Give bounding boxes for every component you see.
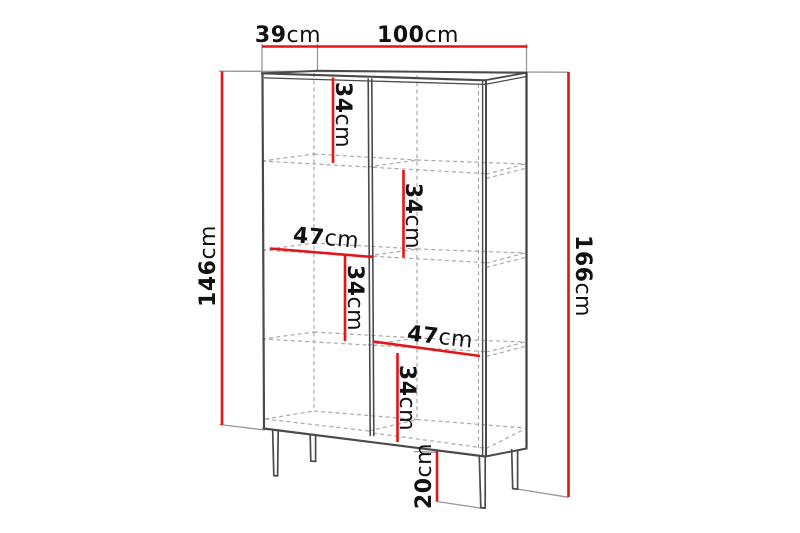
- dimension-value: 34: [394, 365, 419, 397]
- dimension-value: 20: [412, 477, 437, 509]
- dimension-unit: cm: [330, 114, 355, 149]
- dimension-depth-label: 39cm: [255, 25, 321, 47]
- dimension-width-label: 100cm: [377, 25, 459, 47]
- extension-lines: [219, 44, 569, 509]
- dimension-unit: cm: [400, 215, 425, 250]
- dimension-unit: cm: [196, 225, 221, 260]
- dimension-value: 34: [342, 265, 367, 297]
- furniture-dimension-diagram: 39cm 100cm 146cm 166cm 34cm 34cm 47cm 34…: [0, 0, 800, 533]
- dimension-unit: cm: [287, 23, 322, 48]
- dimension-value: 34: [400, 183, 425, 215]
- cabinet-legs: [273, 431, 518, 509]
- dimension-unit: cm: [570, 282, 595, 317]
- dimension-value: 100: [377, 23, 424, 48]
- dimension-unit: cm: [394, 397, 419, 432]
- dimension-unit: cm: [437, 325, 474, 354]
- dimension-value: 146: [196, 260, 221, 307]
- dimension-body-height-label: 146cm: [198, 225, 220, 307]
- dimension-leg-height-label: 20cm: [414, 443, 436, 509]
- dimension-unit: cm: [424, 23, 459, 48]
- dimension-shelf-gap-lower-left-label: 34cm: [343, 265, 365, 331]
- dimension-value: 47: [406, 321, 440, 349]
- dimension-shelf-gap-top-left-label: 34cm: [331, 82, 353, 148]
- dimension-value: 166: [570, 235, 595, 282]
- dimension-unit: cm: [412, 443, 437, 478]
- dimension-shelf-width-left-label: 47cm: [292, 225, 360, 253]
- dimension-shelf-gap-upper-right-label: 34cm: [401, 183, 423, 249]
- dimension-unit: cm: [324, 226, 361, 254]
- dimension-lines: [222, 47, 569, 502]
- dimension-shelf-gap-bottom-right-label: 34cm: [395, 365, 417, 431]
- dimension-value: 34: [330, 82, 355, 114]
- cabinet-line-drawing: [0, 0, 800, 533]
- dimension-value: 47: [292, 223, 326, 251]
- dimension-unit: cm: [342, 297, 367, 332]
- dimension-total-height-label: 166cm: [571, 235, 593, 317]
- dimension-value: 39: [255, 23, 287, 48]
